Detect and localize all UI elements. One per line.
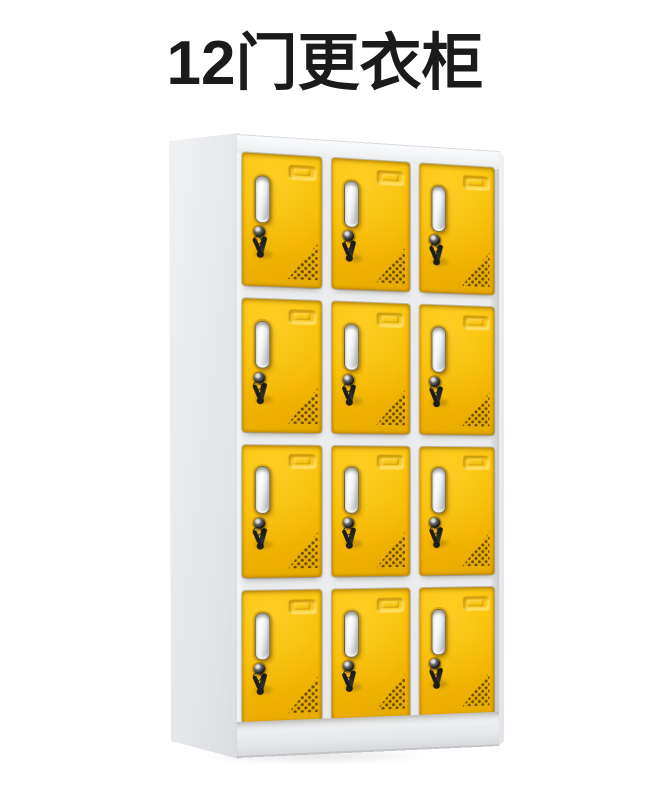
label-slot xyxy=(382,601,399,608)
label-slot xyxy=(382,174,399,182)
door-grid xyxy=(242,152,494,723)
label-card-holder xyxy=(463,176,488,190)
label-card-holder xyxy=(289,165,316,179)
locker-door xyxy=(332,445,409,576)
ventilation-holes xyxy=(377,674,405,710)
product-title: 12门更衣柜 xyxy=(0,28,650,99)
ventilation-holes xyxy=(377,532,405,567)
locker-door xyxy=(242,152,322,288)
ventilation-holes xyxy=(462,251,490,287)
door-handle xyxy=(344,610,359,657)
label-slot xyxy=(468,459,484,466)
door-handle xyxy=(431,185,446,232)
label-slot xyxy=(468,179,484,187)
ventilation-holes xyxy=(288,533,317,569)
label-slot xyxy=(294,602,311,609)
locker-door xyxy=(419,446,494,575)
label-card-holder xyxy=(463,316,488,329)
locker-door xyxy=(419,163,494,295)
ventilation-holes xyxy=(377,390,405,425)
locker-cabinet xyxy=(165,128,515,778)
locker-door xyxy=(332,588,409,720)
door-handle xyxy=(255,467,271,515)
door-handle xyxy=(431,468,446,514)
label-slot xyxy=(294,313,311,320)
locker-door xyxy=(242,445,322,578)
label-card-holder xyxy=(377,598,403,611)
label-card-holder xyxy=(289,310,316,324)
label-slot xyxy=(468,319,484,326)
ventilation-holes xyxy=(462,532,490,567)
cabinet-right-edge xyxy=(499,151,504,746)
locker-door xyxy=(242,589,322,723)
ventilation-holes xyxy=(462,391,490,426)
locker-door xyxy=(242,298,322,432)
label-slot xyxy=(382,459,399,466)
label-slot xyxy=(468,599,484,606)
ventilation-holes xyxy=(462,671,490,706)
door-handle xyxy=(344,467,359,514)
label-card-holder xyxy=(463,456,488,469)
door-handle xyxy=(255,612,271,660)
label-card-holder xyxy=(377,313,403,327)
locker-door xyxy=(332,158,409,292)
label-card-holder xyxy=(377,170,403,184)
label-slot xyxy=(294,168,311,176)
ventilation-holes xyxy=(288,677,317,714)
door-handle xyxy=(255,175,271,224)
door-handle xyxy=(255,321,271,369)
door-handle xyxy=(431,326,446,373)
label-slot xyxy=(294,458,311,465)
label-card-holder xyxy=(377,456,403,469)
cabinet-front-face xyxy=(237,134,499,758)
locker-door xyxy=(332,302,409,434)
cabinet-side-panel xyxy=(165,128,245,768)
door-handle xyxy=(344,180,359,228)
door-handle xyxy=(431,609,446,656)
label-card-holder xyxy=(289,599,316,612)
locker-door xyxy=(419,587,494,717)
ventilation-holes xyxy=(288,388,317,424)
locker-door xyxy=(419,305,494,435)
label-card-holder xyxy=(463,596,488,609)
ventilation-holes xyxy=(288,243,317,280)
label-card-holder xyxy=(289,455,316,468)
label-slot xyxy=(382,316,399,323)
door-handle xyxy=(344,324,359,371)
ventilation-holes xyxy=(377,247,405,283)
product-photo: 12门更衣柜 xyxy=(0,0,650,790)
